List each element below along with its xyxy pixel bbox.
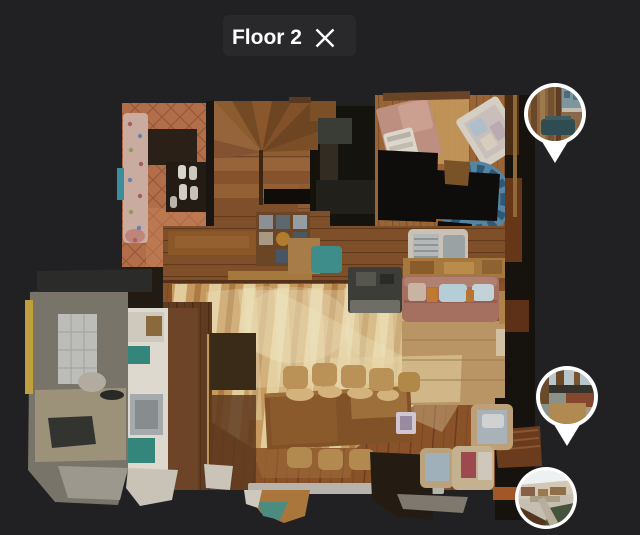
svg-text:Floor 2: Floor 2 [232, 26, 302, 49]
